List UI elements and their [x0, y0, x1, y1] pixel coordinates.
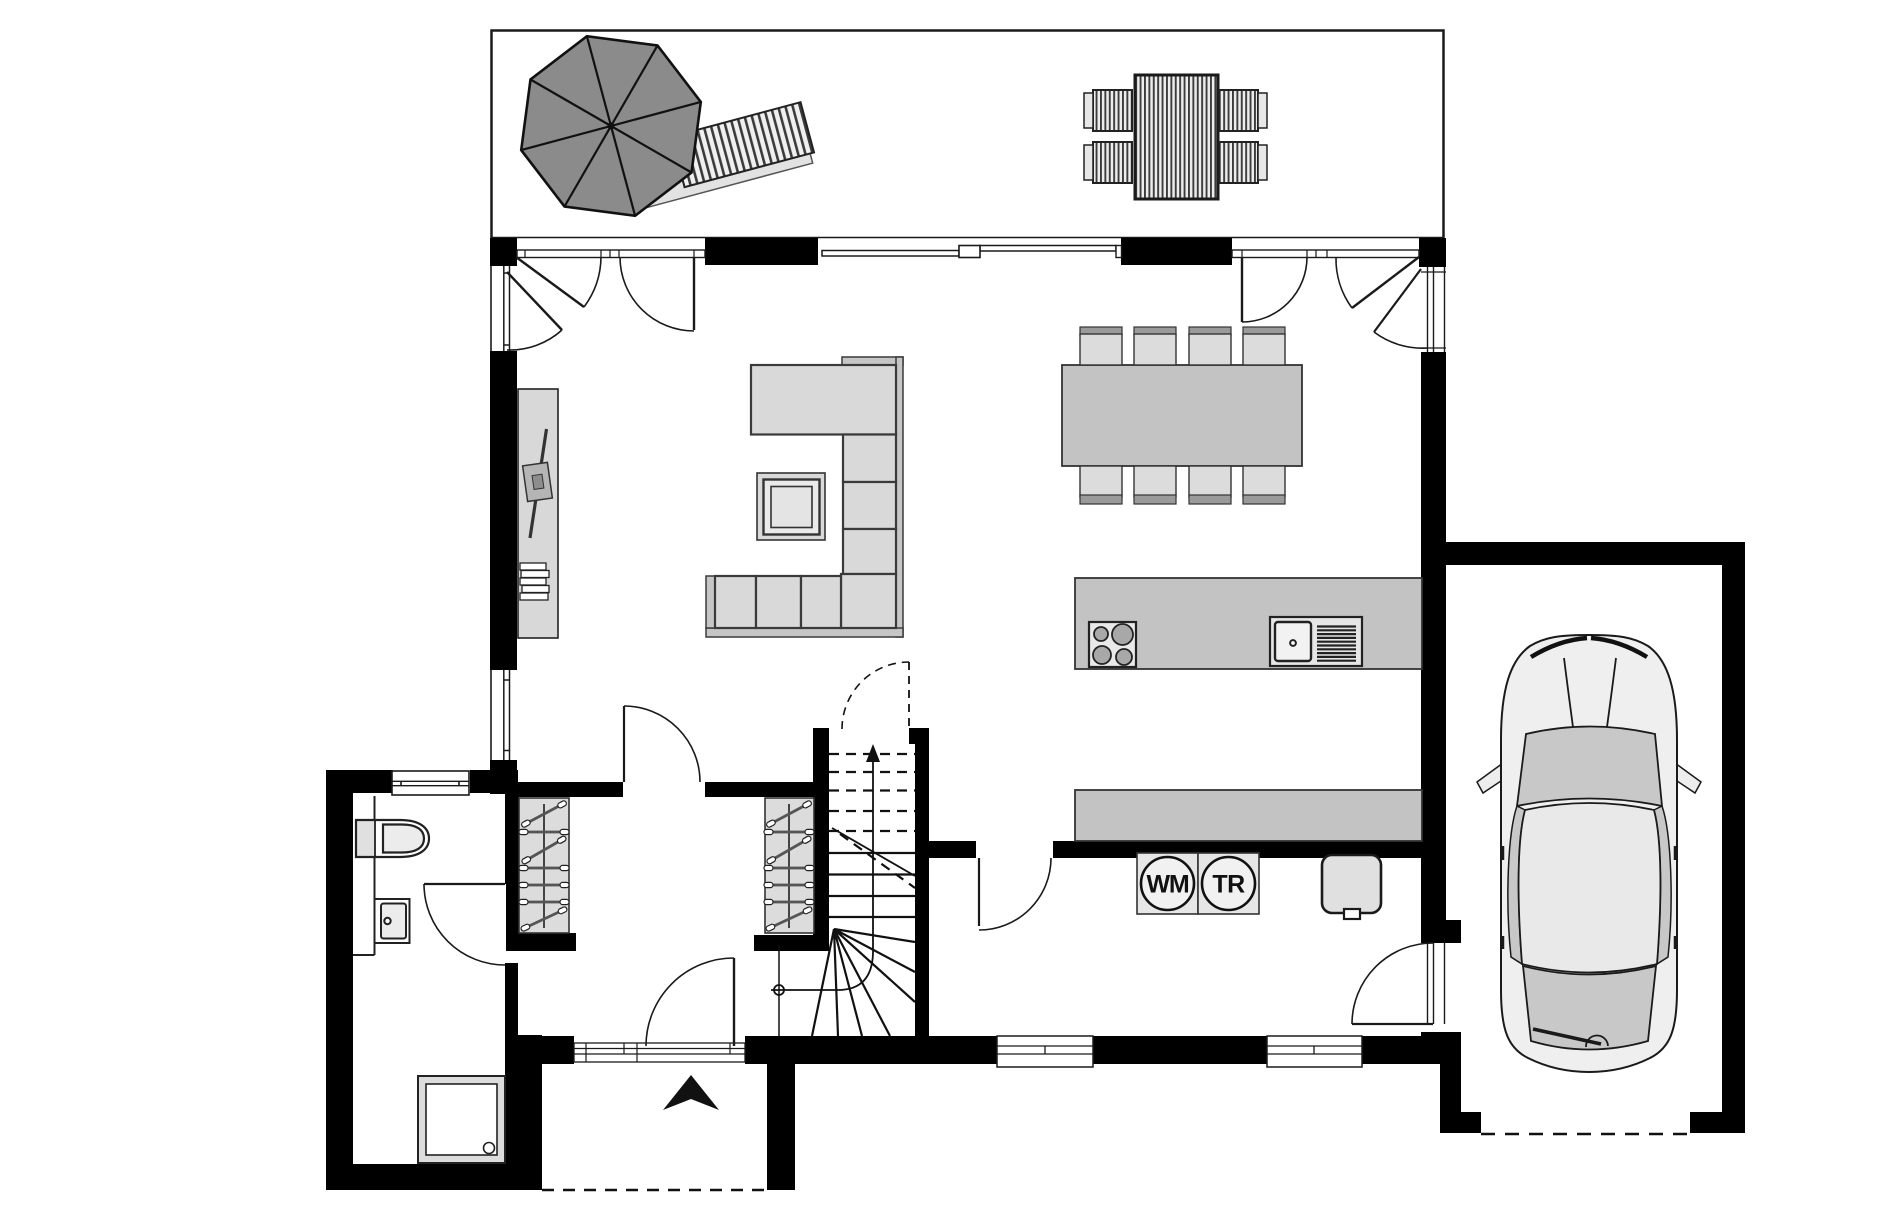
svg-text:WM: WM [1146, 871, 1188, 899]
svg-text:TR: TR [1212, 871, 1245, 899]
